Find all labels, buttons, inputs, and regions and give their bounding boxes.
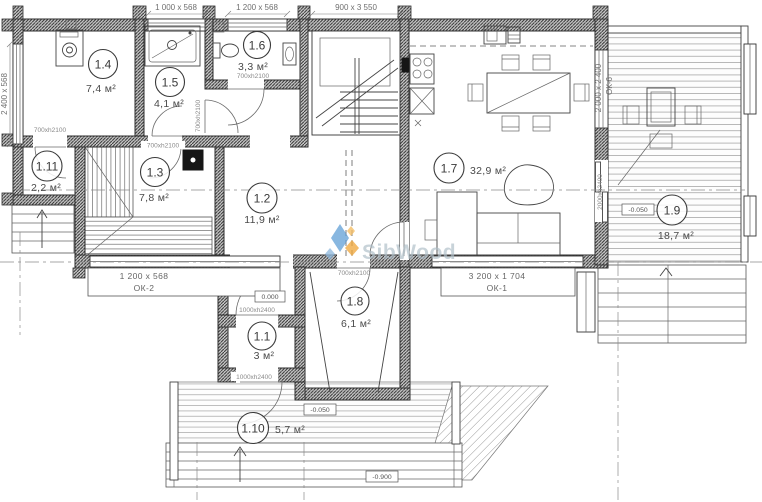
room-1-3-number: 1.3	[147, 166, 164, 180]
room-1-7-area: 32,9 м²	[470, 165, 506, 177]
room-1-5: 1.5 4,1 м²	[154, 68, 185, 111]
dim-left-window: 2 400 x 568	[0, 73, 9, 115]
room-1-7-number: 1.7	[441, 162, 458, 176]
room-1-10-number: 1.10	[241, 422, 265, 436]
room-1-3-area: 7,8 м²	[139, 192, 169, 204]
elevation-minus-900: -0.900	[372, 474, 391, 481]
elevation-minus-050-terrace: -0.050	[628, 207, 647, 214]
kitchen-cabinet	[410, 88, 434, 126]
door-label-700-1: 700xh2100	[34, 127, 67, 134]
window-ok2	[90, 256, 280, 267]
window-top-1000	[148, 19, 205, 31]
room-1-6-area: 3,3 м²	[238, 61, 268, 73]
porch-steps	[166, 443, 462, 487]
wash-basin	[283, 43, 296, 65]
ok2-size-label: 1 200 x 568	[120, 271, 169, 281]
staircase	[312, 31, 400, 256]
floor-plan-page: SibWood 1 200 x 568 ОК-2 3 200 x 1 704 О…	[0, 0, 762, 502]
room-1-6-number: 1.6	[249, 39, 266, 53]
terrace-decking	[608, 33, 741, 262]
elevation-minus-050-porch: -0.050	[310, 407, 329, 414]
left-steps	[12, 205, 74, 253]
room-1-4: 1.4 7,4 м²	[86, 50, 118, 96]
room-1-11-number: 1.11	[36, 160, 59, 174]
room-1-3: 1.3 7,8 м²	[139, 158, 170, 205]
terrace-steps	[598, 265, 746, 343]
dim-stair-opening: 900 x 3 550	[335, 3, 377, 12]
window-label-ok2: 1 200 x 568 ОК-2	[88, 268, 280, 296]
room-1-8-area: 6,1 м²	[341, 318, 371, 330]
window-top-1200	[228, 19, 287, 31]
dim-terrace-door: 2000xh2400	[597, 174, 604, 210]
ok2-name-label: ОК-2	[134, 283, 155, 293]
room-1-6: 1.6 3,3 м²	[238, 32, 271, 74]
dim-top-window-2: 1 200 x 568	[236, 3, 278, 12]
room-1-9-number: 1.9	[664, 204, 681, 218]
room-1-1-area: 3 м²	[254, 350, 275, 362]
door-label-1000-2: 1000xh2400	[236, 374, 272, 381]
room-1-2-area: 11,9 м²	[244, 214, 280, 226]
sauna-heater	[183, 150, 203, 170]
room-1-9-area: 18,7 м²	[658, 230, 694, 242]
window-right-small-1	[744, 44, 756, 114]
room-1-10-area: 5,7 м²	[275, 424, 305, 436]
dim-ok6-name: ОК-6	[605, 76, 614, 95]
window-right-small-2	[744, 196, 756, 236]
room-1-1-number: 1.1	[254, 330, 271, 344]
room-1-8-number: 1.8	[347, 295, 364, 309]
bean-chair	[504, 165, 553, 205]
ok1-size-label: 3 200 x 1 704	[469, 271, 526, 281]
room-1-1: 1.1 3 м²	[248, 322, 276, 362]
watermark-text: SibWood	[362, 241, 456, 264]
room-1-4-area: 7,4 м²	[86, 83, 116, 95]
room-1-11: 1.11 2,2 м²	[31, 151, 62, 194]
door-label-700-2: 700xh2100	[147, 143, 180, 150]
room-1-8: 1.8 6,1 м²	[341, 287, 371, 330]
room-1-5-area: 4,1 м²	[154, 98, 184, 110]
window-pillar-right	[577, 272, 595, 332]
room-1-2: 1.2 11,9 м²	[244, 183, 280, 226]
dining-table	[468, 55, 589, 131]
room-1-11-area: 2,2 м²	[31, 182, 61, 194]
door-label-1000-1: 1000xh2400	[239, 307, 275, 314]
room-1-5-number: 1.5	[162, 76, 179, 90]
room-1-7: 1.7 32,9 м²	[434, 153, 506, 183]
door-label-700-5: 700xh2100	[195, 100, 202, 133]
door-label-700-4: 700xh2100	[338, 270, 371, 277]
ok1-name-label: ОК-1	[487, 283, 508, 293]
window-label-ok1: 3 200 x 1 704 ОК-1	[441, 268, 575, 296]
room-1-4-number: 1.4	[95, 58, 112, 72]
door-label-700-3: 700xh2100	[237, 73, 270, 80]
room-1-2-number: 1.2	[254, 192, 271, 206]
dim-top-window-1: 1 000 x 568	[155, 3, 197, 12]
floor-plan-drawing: SibWood 1 200 x 568 ОК-2 3 200 x 1 704 О…	[0, 0, 762, 502]
shower-cabin	[145, 26, 200, 66]
elevation-zero: 0.000	[261, 294, 278, 301]
window-left-2400	[13, 44, 23, 144]
dim-ok6-size: 2 000 x 2 400	[594, 63, 603, 112]
